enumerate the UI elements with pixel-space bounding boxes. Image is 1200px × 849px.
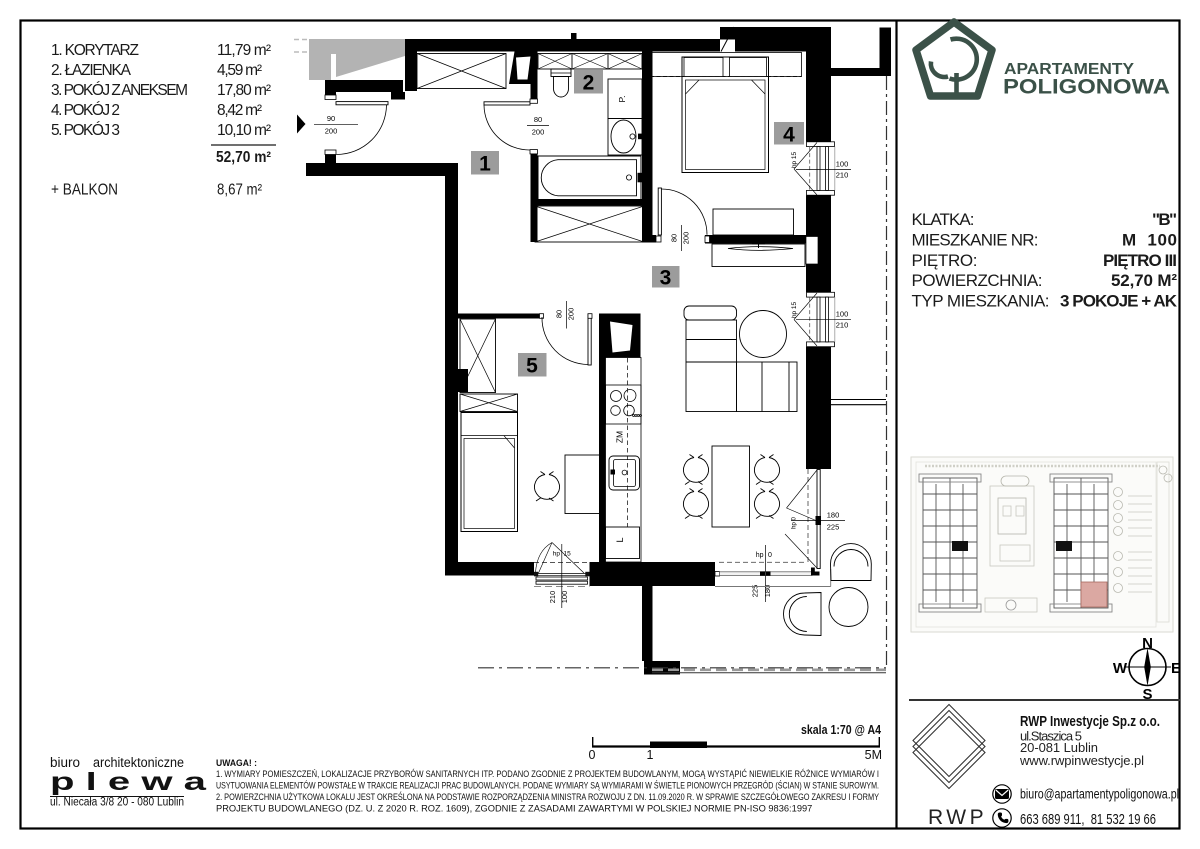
svg-text:5M: 5M — [865, 748, 882, 762]
svg-text:3: 3 — [660, 267, 672, 290]
svg-text:PIĘTRO:: PIĘTRO: — [912, 251, 978, 270]
svg-text:210: 210 — [836, 321, 849, 330]
svg-text:ul. Niecała 3/8 20 - 080 Lubl: ul. Niecała 3/8 20 - 080 Lublin — [50, 797, 184, 809]
svg-text:1: 1 — [479, 153, 491, 176]
svg-text:P.: P. — [617, 96, 627, 103]
svg-text:POLIGONOWA: POLIGONOWA — [1003, 75, 1170, 99]
svg-text:200: 200 — [682, 232, 691, 245]
svg-text:RWP: RWP — [928, 806, 987, 829]
svg-text:200: 200 — [532, 128, 545, 137]
svg-text:8,42 m²: 8,42 m² — [217, 102, 262, 119]
svg-text:3. POKÓJ Z ANEKSEM: 3. POKÓJ Z ANEKSEM — [51, 82, 188, 99]
svg-text:17,80 m²: 17,80 m² — [217, 82, 271, 99]
svg-text:1. KORYTARZ: 1. KORYTARZ — [51, 42, 139, 59]
svg-text:KLATKA:: KLATKA: — [912, 210, 975, 229]
svg-text:E: E — [1171, 660, 1181, 677]
svg-text:210: 210 — [836, 171, 849, 180]
svg-text:210: 210 — [548, 591, 557, 604]
svg-text:p l e w a: p l e w a — [50, 768, 208, 796]
svg-text:W: W — [1113, 660, 1128, 677]
svg-text:5: 5 — [526, 355, 538, 378]
svg-text:N: N — [1142, 635, 1153, 652]
svg-text:80: 80 — [670, 234, 679, 242]
svg-text:biuro@apartamentypoligonowa.pl: biuro@apartamentypoligonowa.pl — [1020, 786, 1179, 802]
svg-text:hp 15: hp 15 — [791, 301, 798, 318]
svg-text:5. POKÓJ 3: 5. POKÓJ 3 — [51, 122, 120, 139]
svg-text:POWIERZCHNIA:: POWIERZCHNIA: — [912, 271, 1043, 290]
svg-text:hp 15: hp 15 — [791, 151, 798, 168]
svg-text:2. ŁAZIENKA: 2. ŁAZIENKA — [51, 62, 132, 79]
svg-text:100: 100 — [836, 310, 849, 319]
svg-text:225: 225 — [827, 523, 840, 532]
svg-text:2: 2 — [583, 72, 595, 95]
svg-text:0: 0 — [768, 552, 772, 559]
svg-text:+ BALKON: + BALKON — [51, 182, 118, 199]
svg-text:"B": "B" — [1152, 210, 1177, 229]
svg-text:UWAGA! :: UWAGA! : — [216, 758, 257, 769]
svg-text:TYP MIESZKANIA:: TYP MIESZKANIA: — [912, 292, 1050, 311]
svg-text:2. POWIERZCHNIA UŻYTKOWA LOKAL: 2. POWIERZCHNIA UŻYTKOWA LOKALU JEST OKR… — [216, 791, 879, 802]
svg-text:0: 0 — [589, 748, 596, 762]
svg-text:USYTUOWANIA ELEMENTÓW POWSTAŁE: USYTUOWANIA ELEMENTÓW POWSTAŁE W TRAKCIE… — [216, 780, 879, 791]
svg-text:hp 0: hp 0 — [792, 517, 798, 529]
svg-text:3 POKOJE + AK: 3 POKOJE + AK — [1060, 292, 1178, 311]
svg-text:www.rwpinwestycje.pl: www.rwpinwestycje.pl — [1019, 753, 1144, 768]
svg-text:PIĘTRO III: PIĘTRO III — [1103, 251, 1177, 270]
svg-text:180: 180 — [827, 511, 840, 520]
svg-text:1: 1 — [647, 748, 654, 762]
svg-text:90: 90 — [327, 114, 335, 123]
svg-text:L: L — [615, 537, 625, 542]
svg-text:200: 200 — [325, 127, 338, 136]
svg-text:hp: hp — [756, 552, 764, 559]
svg-text:8,67 m²: 8,67 m² — [217, 182, 262, 199]
svg-text:1. WYMIARY POMIESZCZEŃ, LOKALI: 1. WYMIARY POMIESZCZEŃ, LOKALIZACJE PRZY… — [216, 769, 879, 779]
svg-text:hp: hp — [553, 551, 561, 558]
svg-text:MIESZKANIE NR:: MIESZKANIE NR: — [912, 231, 1039, 250]
svg-text:15: 15 — [564, 551, 572, 558]
svg-text:663 689 911, 81 532 19 66: 663 689 911, 81 532 19 66 — [1020, 811, 1156, 828]
svg-text:10,10 m²: 10,10 m² — [217, 122, 271, 139]
svg-text:52,70 m²: 52,70 m² — [216, 149, 271, 166]
svg-text:skala 1:70 @ A4: skala 1:70 @ A4 — [801, 722, 882, 737]
svg-text:4: 4 — [783, 124, 795, 147]
svg-text:4,59 m²: 4,59 m² — [217, 62, 262, 79]
svg-text:ZM: ZM — [615, 431, 625, 443]
svg-text:80: 80 — [534, 115, 542, 124]
svg-text:PROJEKTU BUDOWLANEGO (DZ. U. Z: PROJEKTU BUDOWLANEGO (DZ. U. Z 2020 R. R… — [216, 804, 812, 814]
svg-text:80: 80 — [555, 310, 564, 318]
svg-text:200: 200 — [567, 308, 576, 321]
svg-text:52,70 M²: 52,70 M² — [1111, 271, 1177, 290]
svg-text:4. POKÓJ 2: 4. POKÓJ 2 — [51, 102, 120, 119]
svg-text:100: 100 — [560, 591, 569, 604]
svg-text:M 100: M 100 — [1122, 231, 1177, 250]
svg-text:11,79 m²: 11,79 m² — [217, 42, 271, 59]
svg-text:100: 100 — [836, 160, 849, 169]
